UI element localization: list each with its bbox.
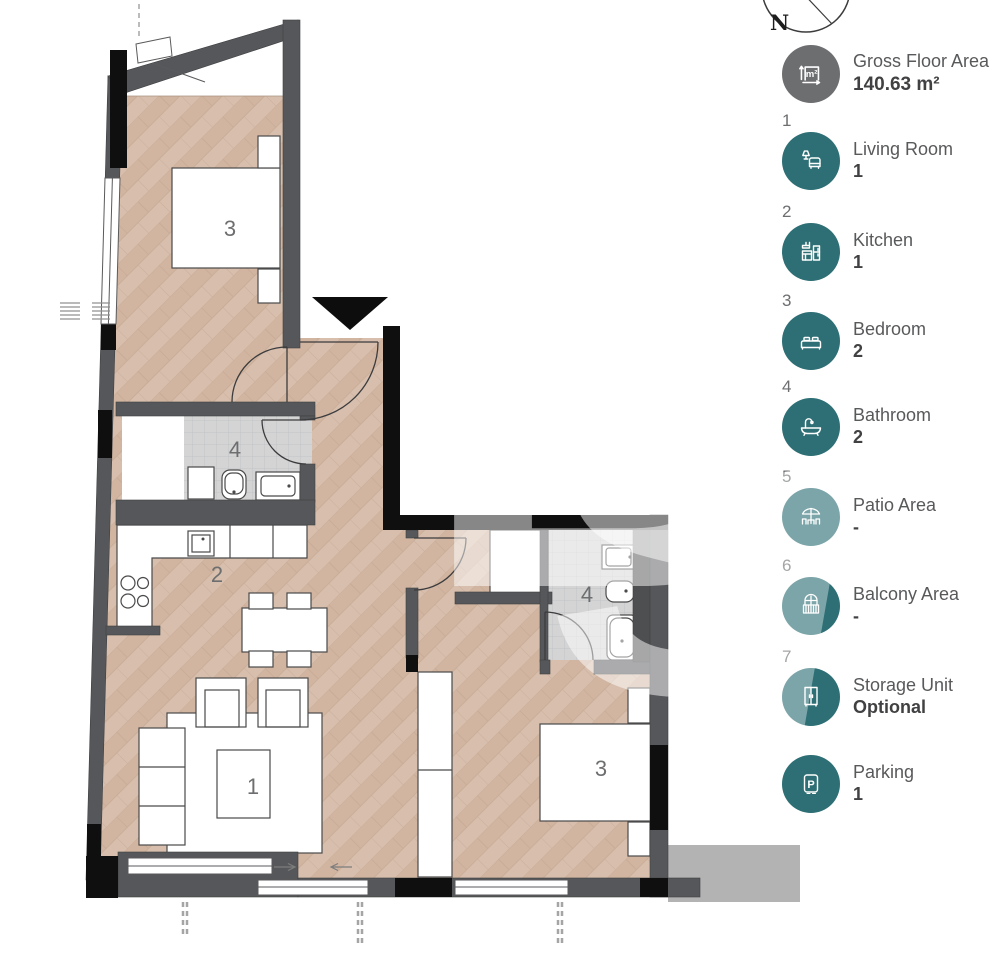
toilet (606, 581, 634, 602)
bedroom-icon (782, 312, 840, 370)
legend-label: Patio Area (853, 495, 936, 517)
svg-text:P: P (807, 779, 814, 791)
nightstand (628, 688, 650, 723)
legend-value: - (853, 517, 936, 539)
legend-item-bathroom: 4 Bathroom 2 (782, 398, 931, 456)
room-label-kitchen: 2 (211, 562, 223, 587)
chair (249, 593, 273, 609)
legend-number: 3 (782, 291, 791, 311)
legend-item-bedroom: 3 Bedroom 2 (782, 312, 926, 370)
nightstand (258, 136, 280, 168)
legend-value: 1 (853, 161, 953, 183)
legend-value: 140.63 m² (853, 73, 989, 96)
legend-value: - (853, 606, 959, 628)
legend-label: Kitchen (853, 230, 913, 252)
storage-icon (782, 668, 840, 726)
room-label-bedroom-right: 3 (595, 756, 607, 781)
wardrobe (418, 672, 452, 877)
chair (249, 651, 273, 667)
legend-label: Balcony Area (853, 584, 959, 606)
legend-number: 1 (782, 111, 791, 131)
floorplan-page: 3 4 2 1 4 3 N B S m² (0, 0, 996, 960)
legend-value: 2 (853, 427, 931, 449)
legend-item-living-room: 1 Living Room 1 (782, 132, 953, 190)
parking-icon: P (782, 755, 840, 813)
gross-floor-area-icon: m² (782, 45, 840, 103)
sofa (139, 728, 185, 845)
legend-item-patio: 5 Patio Area - (782, 488, 936, 546)
legend-label: Bedroom (853, 319, 926, 341)
legend-value: 2 (853, 341, 926, 363)
svg-text:m²: m² (806, 69, 818, 80)
legend-value: 1 (853, 784, 914, 806)
entrance-arrow-icon (312, 297, 388, 330)
legend-item-balcony: 6 Balcony Area - (782, 577, 959, 635)
legend-label: Gross Floor Area (853, 51, 989, 73)
nightstand (628, 822, 650, 856)
legend-number: 2 (782, 202, 791, 222)
living-room-icon (782, 132, 840, 190)
legend-item-gross-floor-area: m² Gross Floor Area 140.63 m² (782, 45, 989, 103)
legend-value: 1 (853, 252, 913, 274)
dining-table (242, 608, 327, 652)
kitchen-icon (782, 223, 840, 281)
room-label-living-room: 1 (247, 774, 259, 799)
legend-item-storage: 7 Storage Unit Optional (782, 668, 953, 726)
nightstand (258, 269, 280, 303)
room-label-bathroom-left: 4 (229, 437, 241, 462)
legend-number: 5 (782, 467, 791, 487)
bathroom-icon (782, 398, 840, 456)
room-label-bedroom-top: 3 (224, 216, 236, 241)
balcony-icon (782, 577, 840, 635)
coffee-table (217, 750, 270, 818)
legend-item-kitchen: 2 Kitchen 1 (782, 223, 913, 281)
legend-item-parking: P Parking 1 (782, 755, 914, 813)
legend-number: 7 (782, 647, 791, 667)
legend-number: 4 (782, 377, 791, 397)
legend-label: Parking (853, 762, 914, 784)
legend-label: Bathroom (853, 405, 931, 427)
legend: m² Gross Floor Area 140.63 m² 1 Living R… (760, 0, 996, 960)
hall-closet (490, 530, 548, 596)
chair (287, 593, 311, 609)
patio-icon (782, 488, 840, 546)
legend-number: 6 (782, 556, 791, 576)
chair (287, 651, 311, 667)
legend-label: Storage Unit (853, 675, 953, 697)
legend-label: Living Room (853, 139, 953, 161)
legend-value: Optional (853, 697, 953, 719)
washer (188, 467, 214, 499)
room-label-bathroom-right: 4 (581, 582, 593, 607)
